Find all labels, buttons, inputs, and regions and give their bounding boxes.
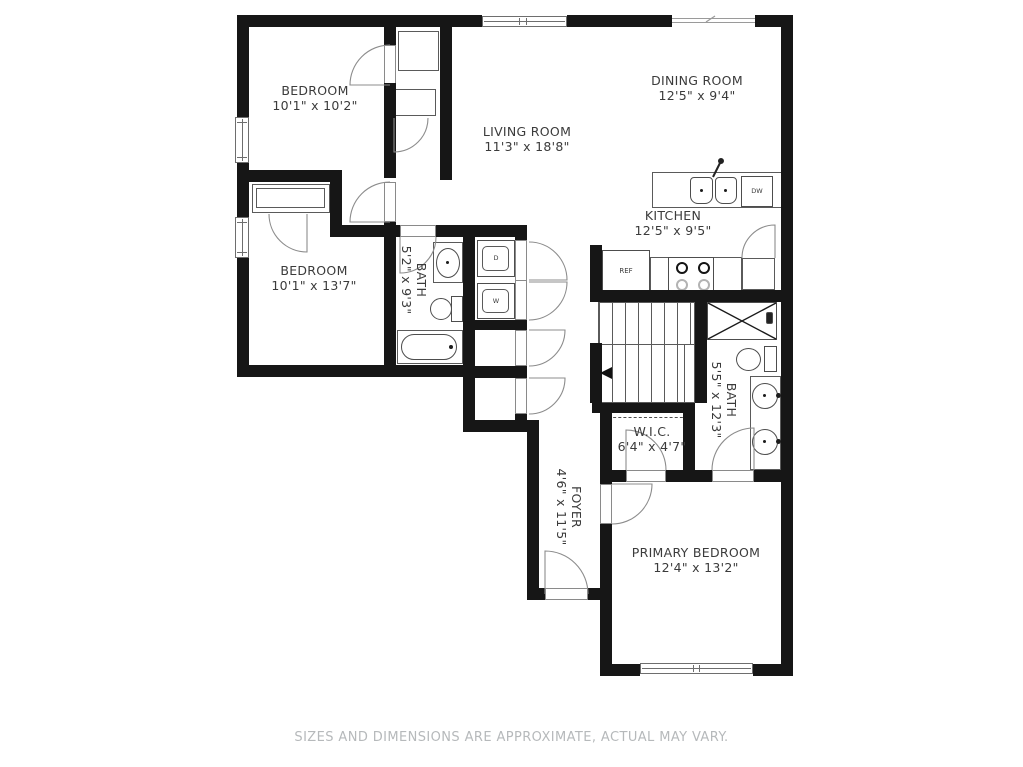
kitchen-faucet [713, 163, 720, 177]
room-name: BEDROOM [234, 263, 394, 278]
room-dims: 5'2" x 9'3" [399, 200, 414, 360]
room-name: FOYER [569, 427, 584, 587]
room-dims: 12'5" x 9'5" [593, 223, 753, 238]
room-label-wic: W.I.C. 6'4" x 4'7" [572, 424, 732, 454]
room-dims: 10'1" x 10'2" [235, 98, 395, 113]
room-label-bath-1: BATH 5'2" x 9'3" [399, 200, 429, 360]
room-dims: 11'3" x 18'8" [447, 139, 607, 154]
laundry-door-arc [529, 242, 567, 280]
room-label-dining-room: DINING ROOM 12'5" x 9'4" [617, 73, 777, 103]
room-dims: 5'5" x 12'3" [709, 320, 724, 480]
room-name: W.I.C. [572, 424, 732, 439]
room-label-bath-2: BATH 5'5" x 12'3" [709, 320, 739, 480]
door-swing-overlay [0, 0, 1023, 767]
room-dims: 12'4" x 13'2" [616, 560, 776, 575]
floor-plan: DW REF D W [0, 0, 1023, 767]
room-dims: 6'4" x 4'7" [572, 439, 732, 454]
room-dims: 4'6" x 11'5" [554, 427, 569, 587]
room-name: KITCHEN [593, 208, 753, 223]
disclaimer-text: SIZES AND DIMENSIONS ARE APPROXIMATE, AC… [0, 730, 1023, 745]
stair-direction-arrow [600, 367, 612, 379]
room-dims: 10'1" x 13'7" [234, 278, 394, 293]
bedroom2-door-arc [350, 182, 390, 222]
primary-bedroom-door-arc [612, 484, 652, 524]
kitchen-faucet-head [719, 159, 723, 163]
room-name: PRIMARY BEDROOM [616, 545, 776, 560]
room-name: BATH [724, 320, 739, 480]
room-dims: 12'5" x 9'4" [617, 88, 777, 103]
room-name: DINING ROOM [617, 73, 777, 88]
window-latch-mark [706, 16, 715, 22]
room-name: LIVING ROOM [447, 124, 607, 139]
hall-closet-door-arc [394, 118, 428, 152]
room-label-foyer: FOYER 4'6" x 11'5" [554, 427, 584, 587]
room-label-bedroom-2: BEDROOM 10'1" x 13'7" [234, 263, 394, 293]
bedroom1-door-arc [350, 45, 390, 85]
room-label-living-room: LIVING ROOM 11'3" x 18'8" [447, 124, 607, 154]
laundry-door-arc [529, 282, 567, 320]
bedroom2-closet-door-arc [269, 214, 307, 252]
room-label-kitchen: KITCHEN 12'5" x 9'5" [593, 208, 753, 238]
closet-door-arc [529, 378, 565, 414]
room-name: BEDROOM [235, 83, 395, 98]
room-label-bedroom-1: BEDROOM 10'1" x 10'2" [235, 83, 395, 113]
room-label-primary-bedroom: PRIMARY BEDROOM 12'4" x 13'2" [616, 545, 776, 575]
closet-door-arc [529, 330, 565, 366]
room-name: BATH [414, 200, 429, 360]
